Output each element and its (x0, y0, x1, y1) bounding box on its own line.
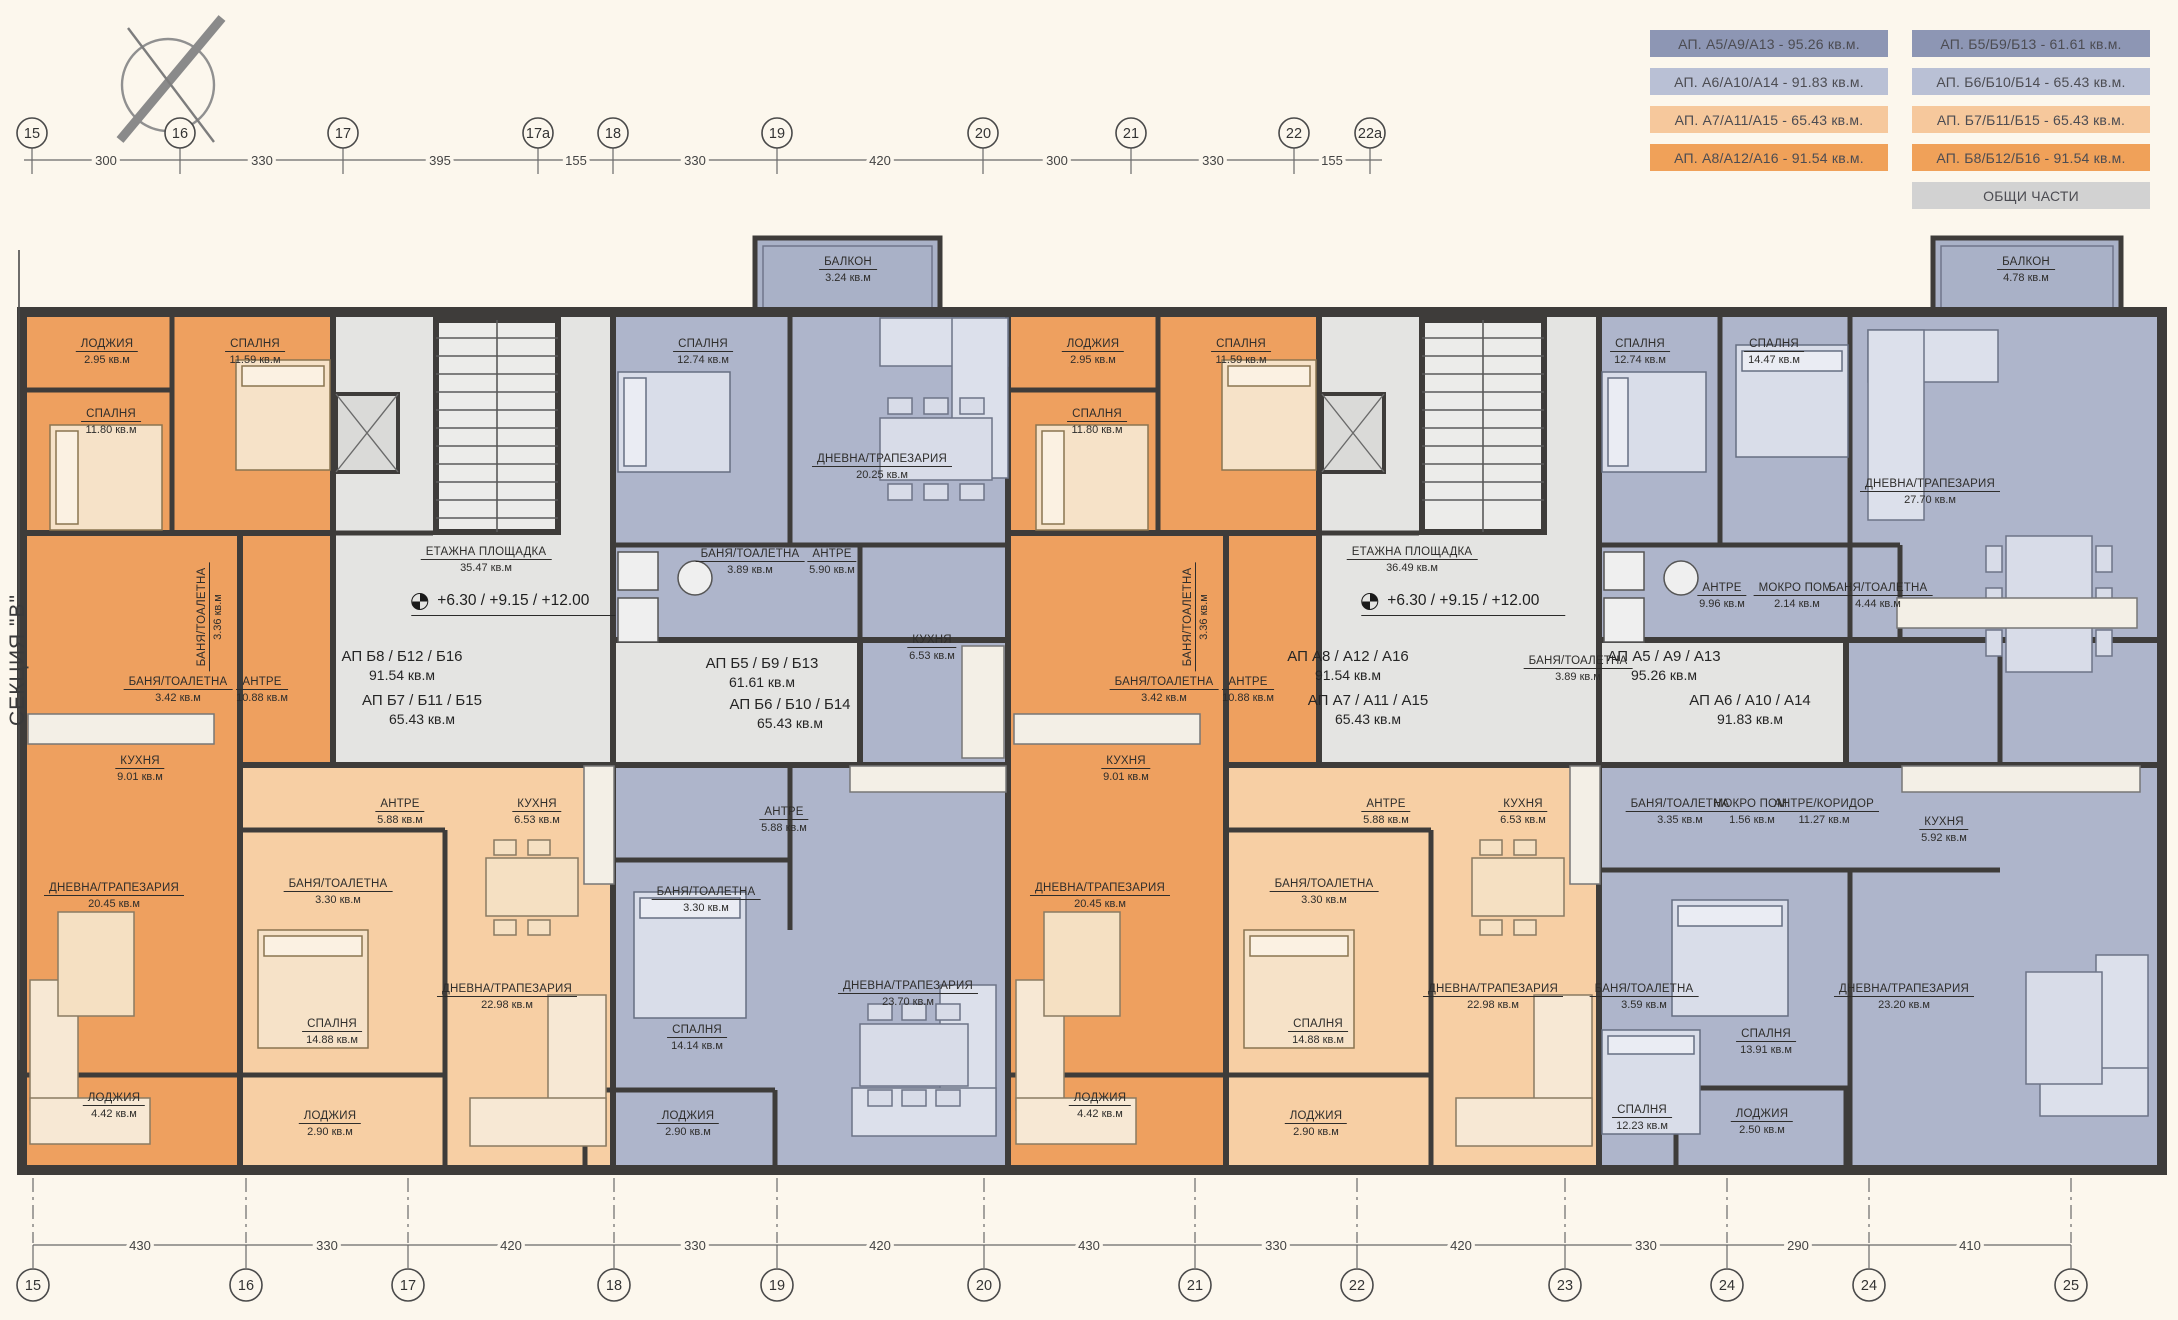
svg-text:15: 15 (24, 126, 40, 142)
grid-bubble: 20 (968, 118, 998, 174)
axis-top: 15 16 17 17а 18 (17, 118, 1385, 174)
dimension-label: 300 (95, 153, 117, 168)
dimension-label: 420 (500, 1238, 522, 1253)
dimension-label: 330 (684, 153, 706, 168)
common-strip-right (1599, 640, 1846, 765)
svg-text:17: 17 (335, 126, 351, 142)
grid-bubble: 24 (1711, 1178, 1743, 1301)
grid-bubble: 19 (762, 118, 792, 174)
grid-bubble: 21 (1179, 1178, 1211, 1301)
elevator-shaft-right (1322, 394, 1384, 472)
svg-text:16: 16 (238, 1278, 254, 1294)
svg-text:25: 25 (2063, 1278, 2079, 1294)
svg-text:18: 18 (605, 126, 621, 142)
stairwell-right (1422, 320, 1544, 532)
legend-item-label: АП. Б6/Б10/Б14 - 65.43 кв.м. (1936, 74, 2125, 90)
elevator-shaft-left (336, 394, 398, 472)
balcony-left (755, 238, 940, 318)
dimension-label: 430 (129, 1238, 151, 1253)
section-title: СЕКЦИЯ "В" (6, 580, 30, 740)
svg-text:21: 21 (1123, 126, 1139, 142)
dimension-label: 330 (1635, 1238, 1657, 1253)
grid-bubble: 25 (2055, 1178, 2087, 1301)
svg-text:15: 15 (25, 1278, 41, 1294)
grid-bubble: 16 (165, 118, 195, 174)
grid-bubble: 22 (1341, 1178, 1373, 1301)
legend-item-label: АП. А6/А10/А14 - 91.83 кв.м. (1674, 74, 1864, 90)
dimension-label: 395 (429, 153, 451, 168)
svg-text:24: 24 (1861, 1278, 1877, 1294)
dimension-label: 330 (1202, 153, 1224, 168)
svg-text:24: 24 (1719, 1278, 1735, 1294)
svg-text:18: 18 (606, 1278, 622, 1294)
legend-item: АП. Б6/Б10/Б14 - 65.43 кв.м. (1912, 68, 2150, 95)
svg-text:16: 16 (172, 126, 188, 142)
grid-bubble: 24 (1853, 1178, 1885, 1301)
svg-text:22: 22 (1349, 1278, 1365, 1294)
legend-item-label: АП. Б7/Б11/Б15 - 65.43 кв.м. (1937, 112, 2125, 128)
svg-text:19: 19 (769, 126, 785, 142)
grid-bubble: 22а (1355, 118, 1385, 174)
legend-item-label: АП. Б5/Б9/Б13 - 61.61 кв.м. (1940, 36, 2121, 52)
svg-text:22а: 22а (1358, 126, 1383, 142)
grid-bubble: 20 (968, 1178, 1000, 1301)
svg-text:17а: 17а (526, 126, 551, 142)
legend-item-label: ОБЩИ ЧАСТИ (1983, 188, 2079, 204)
svg-text:20: 20 (975, 126, 991, 142)
dimension-label: 155 (565, 153, 587, 168)
legend-item-label: АП. А8/А12/А16 - 91.54 кв.м. (1674, 150, 1864, 166)
dimension-label: 155 (1321, 153, 1343, 168)
legend-item: АП. А6/А10/А14 - 91.83 кв.м. (1650, 68, 1888, 95)
dimension-label: 420 (869, 153, 891, 168)
grid-bubble: 17 (328, 118, 358, 174)
svg-text:23: 23 (1557, 1278, 1573, 1294)
svg-text:22: 22 (1286, 126, 1302, 142)
common-strip-left (613, 640, 860, 765)
dimension-label: 420 (1450, 1238, 1472, 1253)
legend-item: АП. Б5/Б9/Б13 - 61.61 кв.м. (1912, 30, 2150, 57)
svg-text:17: 17 (400, 1278, 416, 1294)
dimension-label: 330 (251, 153, 273, 168)
grid-bubble: 16 (230, 1178, 262, 1301)
grid-bubble: 21 (1116, 118, 1146, 174)
legend-common-areas: ОБЩИ ЧАСТИ (1912, 182, 2150, 209)
legend-item: АП. А5/А9/А13 - 95.26 кв.м. (1650, 30, 1888, 57)
grid-bubble: 17 (392, 1178, 424, 1301)
dimension-label: 420 (869, 1238, 891, 1253)
legend-item: АП. Б8/Б12/Б16 - 91.54 кв.м. (1912, 144, 2150, 171)
grid-bubble: 18 (598, 118, 628, 174)
grid-bubble: 15 (17, 118, 47, 174)
legend-item-label: АП. А5/А9/А13 - 95.26 кв.м. (1678, 36, 1860, 52)
dimension-label: 300 (1046, 153, 1068, 168)
legend-item: АП. А8/А12/А16 - 91.54 кв.м. (1650, 144, 1888, 171)
dimension-label: 410 (1959, 1238, 1981, 1253)
legend-column-a: АП. А5/А9/А13 - 95.26 кв.м. АП. А6/А10/А… (1650, 30, 1888, 210)
legend-item: АП. Б7/Б11/Б15 - 65.43 кв.м. (1912, 106, 2150, 133)
grid-bubble: 18 (598, 1178, 630, 1301)
grid-bubble: 23 (1549, 1178, 1581, 1301)
grid-bubble: 15 (17, 1178, 49, 1301)
dimension-label: 330 (1265, 1238, 1287, 1253)
grid-bubble: 17а (523, 118, 553, 174)
axis-bottom: 15 16 17 18 (17, 1178, 2087, 1301)
stairwell-left (436, 320, 558, 532)
dimension-label: 330 (316, 1238, 338, 1253)
dimension-label: 330 (684, 1238, 706, 1253)
svg-text:20: 20 (976, 1278, 992, 1294)
legend-item: АП. А7/А11/А15 - 65.43 кв.м. (1650, 106, 1888, 133)
dimension-label: 430 (1078, 1238, 1100, 1253)
dimension-label: 290 (1787, 1238, 1809, 1253)
legend-item-label: АП. Б8/Б12/Б16 - 91.54 кв.м. (1936, 150, 2125, 166)
legend-item-label: АП. А7/А11/А15 - 65.43 кв.м. (1675, 112, 1864, 128)
grid-bubble: 22 (1279, 118, 1309, 174)
grid-bubble: 19 (761, 1178, 793, 1301)
floor-plan-screenshot: 15 16 17 17а 18 (0, 0, 2178, 1320)
apartment-zone-a5-lower (1846, 640, 2162, 765)
svg-text:19: 19 (769, 1278, 785, 1294)
svg-text:21: 21 (1187, 1278, 1203, 1294)
balcony-right (1933, 238, 2121, 318)
